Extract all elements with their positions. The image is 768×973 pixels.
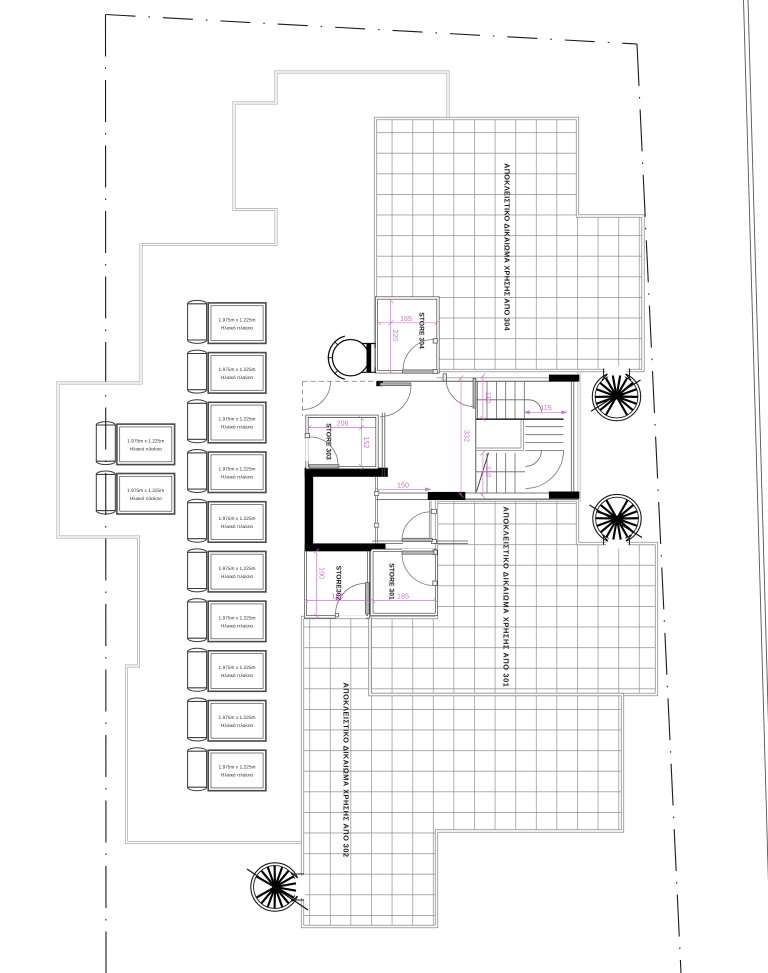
- svg-text:185: 185: [397, 591, 409, 600]
- svg-text:206: 206: [337, 419, 349, 428]
- svg-text:110: 110: [484, 392, 493, 403]
- svg-text:115: 115: [540, 403, 551, 412]
- svg-text:ΑΠΟΚΛΕΙΣΤΙΚΟ ΔΙΚΑΙΩΜΑ ΧΡΗΣΗΣ Α: ΑΠΟΚΛΕΙΣΤΙΚΟ ΔΙΚΑΙΩΜΑ ΧΡΗΣΗΣ ΑΠΟ 304: [503, 163, 512, 331]
- svg-text:165: 165: [400, 314, 412, 323]
- svg-text:150: 150: [397, 480, 409, 489]
- svg-text:185: 185: [332, 591, 344, 600]
- svg-text:152: 152: [362, 437, 371, 449]
- svg-text:220: 220: [391, 329, 400, 341]
- svg-text:332: 332: [463, 430, 472, 442]
- svg-text:190: 190: [317, 567, 326, 579]
- svg-text:ΑΠΟΚΛΕΙΣΤΙΚΟ ΔΙΚΑΙΩΜΑ ΧΡΗΣΗΣ Α: ΑΠΟΚΛΕΙΣΤΙΚΟ ΔΙΚΑΙΩΜΑ ΧΡΗΣΗΣ ΑΠΟ 302: [342, 683, 351, 858]
- svg-text:ΑΠΟΚΛΕΙΣΤΙΚΟ ΔΙΚΑΙΩΜΑ ΧΡΗΣΗΣ Α: ΑΠΟΚΛΕΙΣΤΙΚΟ ΔΙΚΑΙΩΜΑ ΧΡΗΣΗΣ ΑΠΟ 301: [502, 506, 511, 687]
- svg-text:110: 110: [484, 466, 493, 477]
- svg-text:STORE 301: STORE 301: [388, 563, 395, 600]
